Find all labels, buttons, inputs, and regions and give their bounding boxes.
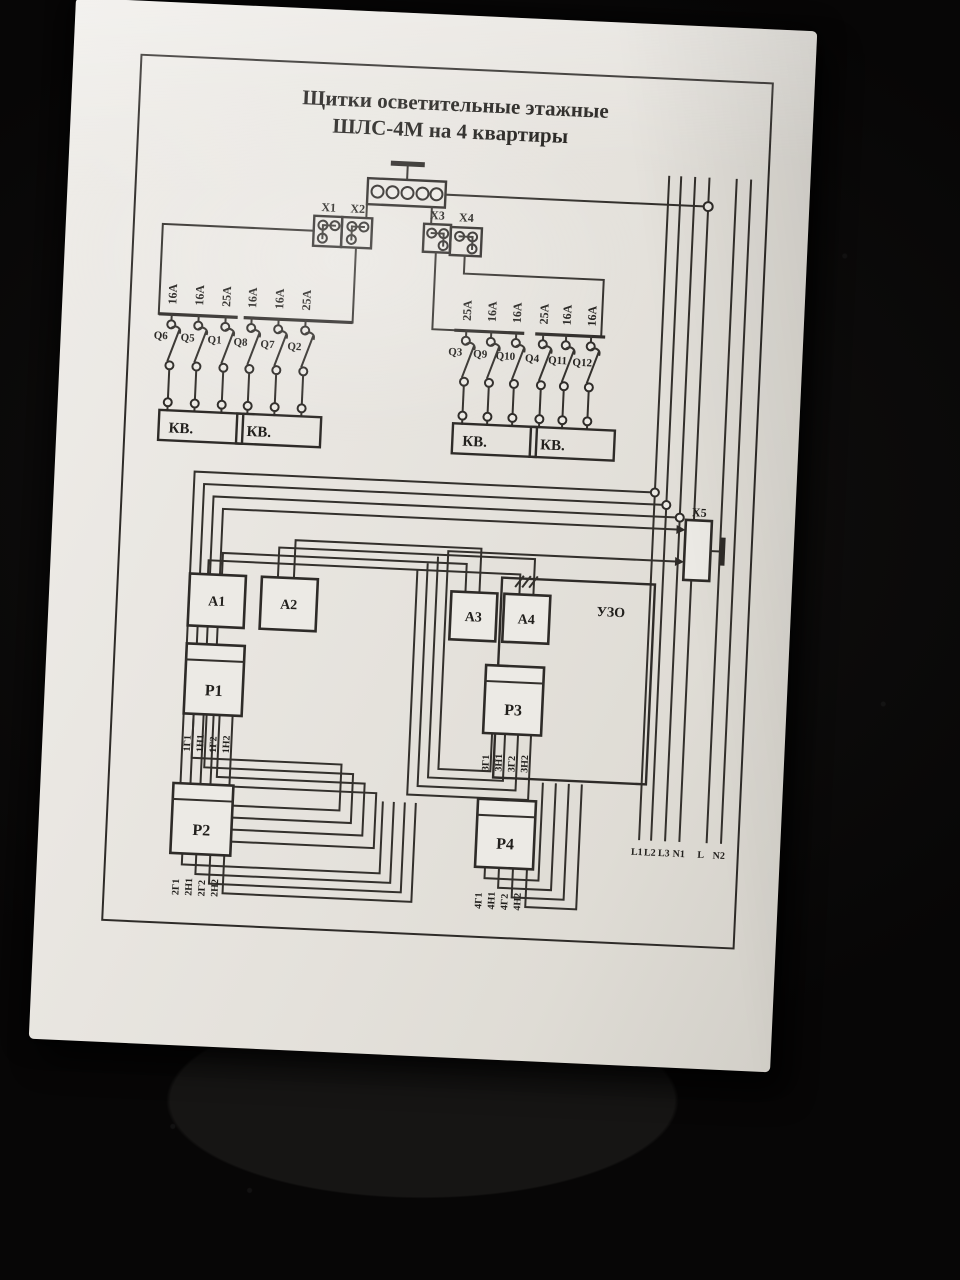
connector-x2: X2: [341, 201, 373, 248]
bus-label-l2: L2: [644, 847, 656, 859]
terminal-label: 3Н1: [493, 754, 505, 772]
rating: 16А: [510, 302, 525, 324]
breaker-symbol: [297, 320, 314, 416]
wiring-loops: [176, 468, 688, 914]
breaker-symbol: [270, 319, 287, 415]
bus-label-n1: N1: [672, 849, 685, 861]
connector-x4: X4: [450, 210, 483, 256]
terminal-label: 2Н1: [183, 878, 195, 896]
wire-x4-drop: [461, 256, 604, 337]
breaker-symbol: [535, 334, 552, 427]
relay-p3-label: P3: [504, 702, 523, 720]
breaker-label: Q12: [572, 357, 593, 370]
breaker-label: Q5: [180, 332, 195, 345]
breaker-label: Q11: [548, 355, 567, 368]
kv-label: КВ.: [246, 424, 272, 441]
rating: 16А: [192, 284, 207, 306]
right-busbar-2: [535, 334, 605, 337]
rating: 25А: [299, 289, 314, 311]
bus-label-l3: L3: [658, 848, 670, 860]
terminal-label: 3Г1: [480, 754, 492, 771]
module-a3: A3: [449, 591, 497, 641]
schematic-drawing: Щитки осветительные этажные ШЛС-4М на 4 …: [29, 0, 818, 1072]
rating: 16А: [165, 283, 180, 305]
breaker-symbol: [508, 333, 525, 426]
bus-label-l1: L1: [631, 847, 643, 859]
kv-boxes: КВ. КВ. КВ. КВ.: [158, 410, 615, 461]
uzo-label: УЗО: [596, 605, 625, 621]
module-a2-label: A2: [280, 598, 298, 614]
rating: 25А: [460, 299, 475, 321]
relay-p2-label: P2: [192, 822, 211, 840]
terminal-label: 4Н1: [486, 891, 498, 909]
connector-x1: X1: [313, 200, 343, 247]
breaker-symbol: [458, 331, 475, 424]
breaker-symbol: [190, 315, 207, 411]
breaker-label: Q4: [525, 352, 540, 365]
terminal-label: 1Г1: [182, 735, 194, 752]
relay-p4-label: P4: [496, 836, 515, 854]
rating: 25А: [537, 303, 552, 325]
breaker-label: Q7: [260, 338, 275, 351]
breaker-label: Q6: [153, 330, 168, 343]
module-a3-label: A3: [464, 610, 482, 626]
breaker-label: Q10: [495, 350, 516, 363]
rating: 16А: [245, 287, 260, 309]
kv-label: КВ.: [462, 434, 488, 451]
module-a4-label: A4: [517, 612, 535, 628]
breaker-symbol: [243, 318, 260, 414]
breaker-label: Q2: [287, 341, 302, 354]
module-a2: A2: [260, 577, 318, 631]
connector-x2-label: X2: [350, 201, 365, 216]
left-busbar-2: [244, 318, 353, 323]
module-a1-label: A1: [208, 594, 226, 610]
wire-x3-drop: [432, 252, 457, 330]
terminal-label: 4Г2: [499, 893, 511, 910]
right-busbar-1: [454, 330, 524, 333]
junction-dot-n1: [703, 202, 712, 211]
wire-x1-to-leftbus: [159, 224, 314, 321]
connector-x5-label: X5: [692, 505, 707, 520]
rating: 16А: [585, 305, 600, 327]
wire-x2-drop: [353, 248, 356, 323]
terminal-label: 2Г2: [196, 880, 208, 897]
connector-x3: X3: [423, 208, 452, 253]
terminal-label: 3Г2: [506, 756, 518, 773]
terminal-label: 1Г2: [208, 736, 220, 753]
terminal-label: 4Г1: [473, 892, 485, 909]
breaker-symbol: [163, 314, 180, 410]
breaker-label: Q3: [448, 346, 463, 359]
bus-label-l: L: [697, 850, 704, 861]
terminal-label: 3Н2: [519, 755, 531, 773]
bus-label-n2: N2: [712, 850, 725, 862]
module-a1: A1: [188, 573, 246, 627]
terminal-label: 4Н2: [512, 893, 524, 911]
relay-p1-label: P1: [204, 682, 223, 700]
module-a4: A4: [502, 594, 550, 644]
connector-x1-label: X1: [321, 200, 336, 215]
breaker-label: Q8: [233, 336, 248, 349]
terminal-label: 2Н2: [209, 879, 221, 897]
kv-label: КВ.: [168, 420, 194, 437]
kv-label: КВ.: [540, 437, 566, 454]
connector-x3-label: X3: [430, 208, 445, 223]
rating: 25А: [219, 286, 234, 308]
breaker-label: Q1: [207, 334, 222, 347]
relay-p1: P1 1Г1 1Н1 1Г2 1Н2: [182, 643, 245, 754]
top-terminal-strip: [366, 162, 714, 237]
connector-x4-label: X4: [459, 210, 474, 225]
terminal-label: 1Н1: [195, 734, 207, 752]
relay-p3: P3 3Г1 3Н1 3Г2 3Н2: [480, 665, 544, 774]
terminal-label: 2Г1: [170, 879, 182, 896]
x5-ground-bar: [722, 538, 723, 566]
breaker-symbol: [217, 317, 234, 413]
photo-background: { "title": { "line1": "Щитки осветительн…: [0, 0, 960, 1280]
breaker-symbol: [583, 336, 600, 429]
breaker-symbol: [558, 335, 575, 428]
rating: 16А: [485, 301, 500, 323]
paper-sheet: Щитки осветительные этажные ШЛС-4М на 4 …: [29, 0, 818, 1072]
bus-labels: L1 L2 L3 N1 L N2: [631, 847, 725, 862]
rating: 16А: [560, 304, 575, 326]
breaker-symbol: [483, 332, 500, 425]
terminal-label: 1Н2: [221, 735, 233, 753]
rating: 16А: [272, 288, 287, 310]
